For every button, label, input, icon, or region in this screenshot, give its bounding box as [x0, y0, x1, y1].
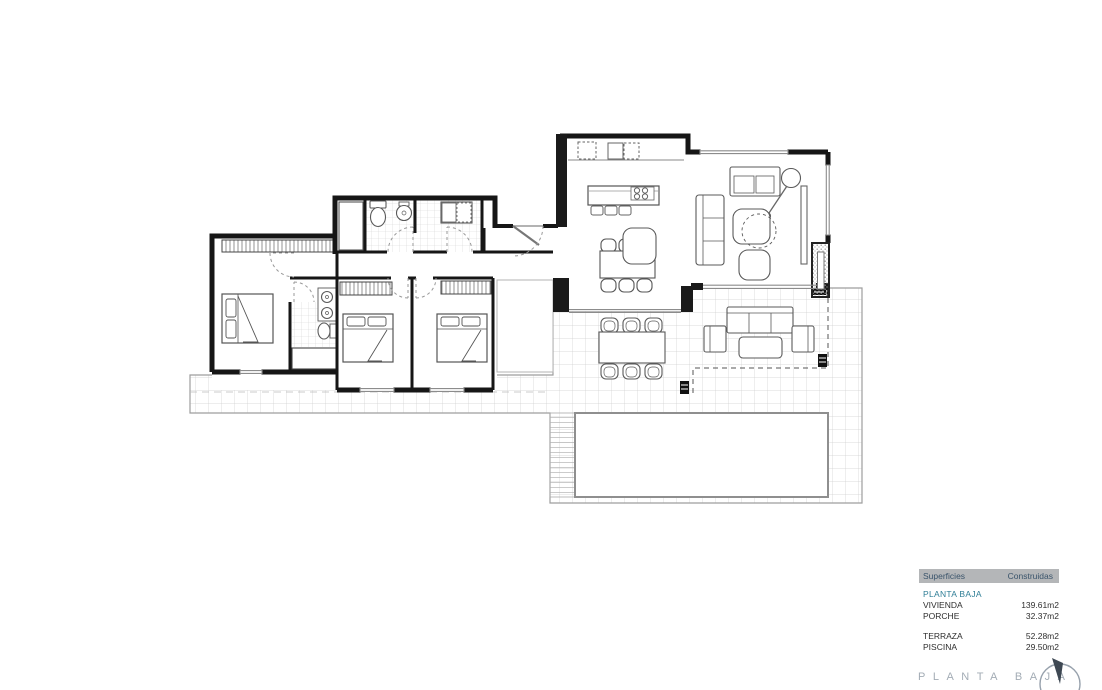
dining-wall-stub	[553, 278, 569, 312]
row-label: PORCHE	[923, 612, 959, 622]
row-value: 52.28m2	[1026, 632, 1059, 642]
master-bedroom	[222, 294, 273, 343]
outdoor-coffee-table-icon	[739, 337, 782, 358]
areas-table: Superficies Construidas PLANTA BAJA VIVI…	[919, 569, 1059, 653]
floor-lamp-icon	[782, 169, 801, 188]
sofa-icon	[696, 195, 724, 265]
stool-icon	[619, 206, 631, 215]
side-patio	[497, 280, 553, 372]
chair-icon	[601, 239, 616, 252]
stool-icon	[591, 206, 603, 215]
table-row: VIVIENDA 139.61m2	[923, 601, 1059, 611]
north-compass-icon	[1036, 650, 1084, 690]
outdoor-armchair-icon	[792, 326, 814, 352]
wardrobe-icon	[340, 282, 392, 295]
areas-table-header: Superficies Construidas	[919, 569, 1059, 583]
utility-closet-icon	[339, 202, 363, 250]
terrace-light-icon	[818, 354, 827, 367]
toilet-icon	[371, 208, 386, 227]
row-value: 32.37m2	[1026, 612, 1059, 622]
outdoor-dining-set	[599, 318, 665, 379]
row-label: PISCINA	[923, 643, 957, 653]
glass-wall-stub	[691, 283, 703, 290]
row-label: TERRAZA	[923, 632, 963, 642]
terrace-light-icon	[680, 381, 689, 394]
pool-steps	[550, 413, 575, 497]
pool-basin	[575, 413, 828, 497]
wardrobe-icon	[441, 281, 491, 294]
laundry-fixtures	[441, 202, 472, 223]
bedroom-3	[437, 314, 487, 362]
west-facade-wall	[556, 134, 567, 227]
floor-plan-page: Superficies Construidas PLANTA BAJA VIVI…	[0, 0, 1102, 690]
table-row: TERRAZA 52.28m2	[923, 632, 1059, 642]
vanity-cabinet-icon	[292, 348, 337, 369]
pouf-icon	[623, 228, 656, 264]
stool-icon	[605, 206, 617, 215]
console-icon	[801, 186, 807, 264]
wardrobe-icon	[222, 240, 335, 252]
appliance-icon	[608, 143, 623, 159]
section-planta-baja: PLANTA BAJA	[923, 589, 1059, 599]
chair-icon	[637, 279, 652, 292]
pool	[550, 413, 828, 497]
col-superficies: Superficies	[923, 571, 965, 581]
outdoor-sofa-icon	[727, 307, 793, 333]
bedroom-2	[343, 314, 393, 362]
washer-icon	[457, 203, 471, 222]
coffee-table-icon	[733, 209, 770, 244]
overhead-cabinet-icon	[578, 142, 596, 159]
outdoor-armchair-icon	[704, 326, 726, 352]
row-value: 139.61m2	[1021, 601, 1059, 611]
chair-icon	[619, 279, 634, 292]
overhead-cabinet-icon	[624, 143, 639, 159]
toilet-icon	[318, 323, 330, 339]
col-construidas: Construidas	[1008, 571, 1053, 581]
side-table-icon	[739, 250, 770, 280]
table-row: PORCHE 32.37m2	[923, 612, 1059, 622]
chair-icon	[601, 279, 616, 292]
row-label: VIVIENDA	[923, 601, 963, 611]
outdoor-table-icon	[599, 332, 665, 363]
